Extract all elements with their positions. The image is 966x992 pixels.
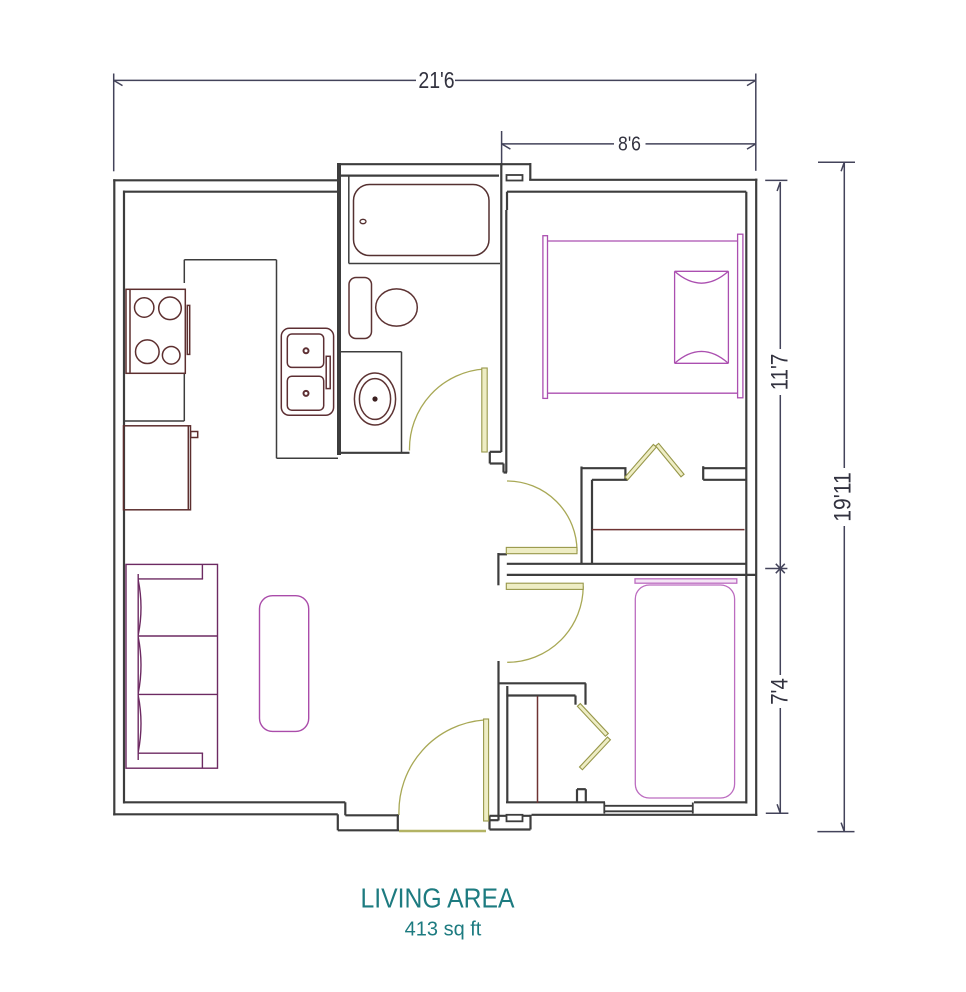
svg-text:8'6: 8'6: [618, 132, 641, 154]
svg-text:11'7: 11'7: [766, 354, 793, 390]
svg-text:21'6: 21'6: [418, 66, 454, 93]
svg-text:LIVING AREA: LIVING AREA: [361, 882, 515, 914]
svg-text:19'11: 19'11: [829, 472, 856, 521]
svg-text:7'4: 7'4: [766, 678, 793, 705]
svg-text:413 sq ft: 413 sq ft: [405, 919, 482, 941]
